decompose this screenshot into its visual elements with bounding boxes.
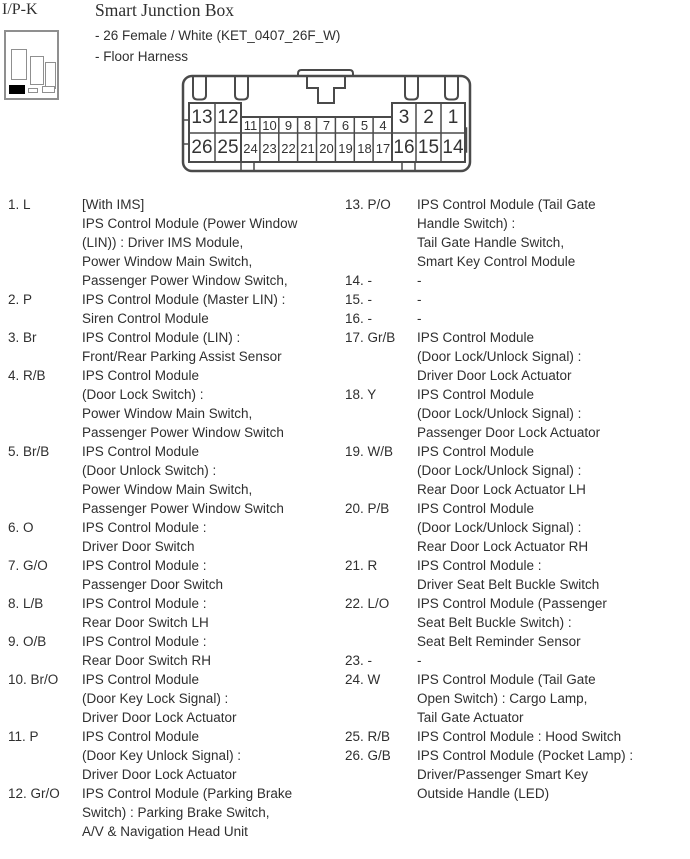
- pin-cell-9: 9: [279, 117, 298, 133]
- pin-entry-11: 11. P IPS Control Module (Door Key Unloc…: [8, 727, 342, 784]
- pin-cell-18: 18: [355, 133, 374, 162]
- pin-entry-19: 19. W/B IPS Control Module (Door Lock/Un…: [345, 442, 687, 499]
- pin-number-label: 4. R/B: [8, 366, 82, 385]
- pin-number-label: 7. G/O: [8, 556, 82, 575]
- pin-number-label: 9. O/B: [8, 632, 82, 651]
- pin-number-label: 16. -: [345, 309, 417, 328]
- pin-number-label: 13. P/O: [345, 195, 417, 214]
- pin-list-left: 1. L [With IMS] IPS Control Module (Powe…: [8, 195, 342, 841]
- pin-cell-24: 24: [241, 133, 260, 162]
- connector-location-icon: [4, 30, 59, 100]
- pin-cell-16: 16: [392, 133, 416, 162]
- pin-number-label: 24. W: [345, 670, 417, 689]
- pin-description: IPS Control Module (Tail Gate Open Switc…: [417, 670, 687, 727]
- pin-entry-25: 25. R/B IPS Control Module : Hood Switch: [345, 727, 687, 746]
- pin-cell-22: 22: [279, 133, 298, 162]
- pin-entry-7: 7. G/O IPS Control Module : Passenger Do…: [8, 556, 342, 594]
- pin-number-label: 23. -: [345, 651, 417, 670]
- pin-entry-1: 1. L [With IMS] IPS Control Module (Powe…: [8, 195, 342, 290]
- pin-entry-18: 18. Y IPS Control Module (Door Lock/Unlo…: [345, 385, 687, 442]
- pin-description: IPS Control Module (Tail Gate Handle Swi…: [417, 195, 687, 271]
- pin-cell-13: 13: [189, 103, 215, 133]
- pin-description: IPS Control Module (Door Lock/Unlock Sig…: [417, 328, 687, 385]
- pin-cell-3: 3: [392, 103, 416, 133]
- connector-id: I/P-K: [2, 1, 38, 19]
- pin-description: IPS Control Module (Door Lock Switch) : …: [82, 366, 342, 442]
- pin-number-label: 17. Gr/B: [345, 328, 417, 347]
- pin-number-label: 21. R: [345, 556, 417, 575]
- pin-cell-23: 23: [260, 133, 279, 162]
- pin-cell-5: 5: [355, 117, 374, 133]
- pin-cell-4: 4: [374, 117, 392, 133]
- pin-cell-17: 17: [374, 133, 392, 162]
- pin-cell-8: 8: [298, 117, 317, 133]
- pin-number-label: 3. Br: [8, 328, 82, 347]
- pin-entry-24: 24. W IPS Control Module (Tail Gate Open…: [345, 670, 687, 727]
- pin-number-label: 11. P: [8, 727, 82, 746]
- pin-entry-6: 6. O IPS Control Module : Driver Door Sw…: [8, 518, 342, 556]
- pin-cell-26: 26: [189, 133, 215, 162]
- pin-number-label: 2. P: [8, 290, 82, 309]
- connector-spec: - 26 Female / White (KET_0407_26F_W): [95, 28, 340, 43]
- pin-entry-14: 14. - -: [345, 271, 687, 290]
- location-highlight-block: [9, 85, 25, 94]
- bottom-tab-1: [241, 162, 254, 171]
- pin-number-label: 26. G/B: [345, 746, 417, 765]
- pin-entry-16: 16. - -: [345, 309, 687, 328]
- pin-entry-13: 13. P/O IPS Control Module (Tail Gate Ha…: [345, 195, 687, 271]
- location-block-2: [30, 56, 44, 85]
- pin-number-label: 20. P/B: [345, 499, 417, 518]
- pin-description: IPS Control Module (Master LIN) : Siren …: [82, 290, 342, 328]
- pin-description: -: [417, 290, 687, 309]
- pin-list-right: 13. P/O IPS Control Module (Tail Gate Ha…: [345, 195, 687, 803]
- pin-entry-23: 23. - -: [345, 651, 687, 670]
- pin-description: -: [417, 309, 687, 328]
- pin-description: IPS Control Module (Door Lock/Unlock Sig…: [417, 385, 687, 442]
- pin-cell-25: 25: [215, 133, 241, 162]
- pin-description: IPS Control Module : Rear Door Switch LH: [82, 594, 342, 632]
- pin-entry-12: 12. Gr/O IPS Control Module (Parking Bra…: [8, 784, 342, 841]
- pin-number-label: 18. Y: [345, 385, 417, 404]
- pin-entry-2: 2. P IPS Control Module (Master LIN) : S…: [8, 290, 342, 328]
- pin-entry-15: 15. - -: [345, 290, 687, 309]
- pin-number-label: 14. -: [345, 271, 417, 290]
- pin-cell-6: 6: [336, 117, 355, 133]
- pin-cell-2: 2: [416, 103, 441, 133]
- pin-entry-21: 21. R IPS Control Module : Driver Seat B…: [345, 556, 687, 594]
- pin-cell-7: 7: [317, 117, 336, 133]
- pin-cell-19: 19: [336, 133, 355, 162]
- pin-cell-12: 12: [215, 103, 241, 133]
- pin-entry-4: 4. R/B IPS Control Module (Door Lock Swi…: [8, 366, 342, 442]
- pin-number-label: 12. Gr/O: [8, 784, 82, 803]
- pin-description: IPS Control Module : Driver Door Switch: [82, 518, 342, 556]
- pin-cell-15: 15: [416, 133, 441, 162]
- harness-name: - Floor Harness: [95, 49, 188, 64]
- pin-description: [With IMS] IPS Control Module (Power Win…: [82, 195, 342, 290]
- pin-entry-8: 8. L/B IPS Control Module : Rear Door Sw…: [8, 594, 342, 632]
- pin-description: IPS Control Module (Door Unlock Switch) …: [82, 442, 342, 518]
- pin-description: -: [417, 651, 687, 670]
- pin-description: IPS Control Module : Rear Door Switch RH: [82, 632, 342, 670]
- bottom-tab-2: [402, 162, 415, 171]
- pin-entry-17: 17. Gr/B IPS Control Module (Door Lock/U…: [345, 328, 687, 385]
- pin-number-label: 6. O: [8, 518, 82, 537]
- pin-number-label: 19. W/B: [345, 442, 417, 461]
- pin-description: IPS Control Module (Door Lock/Unlock Sig…: [417, 442, 687, 499]
- pin-description: IPS Control Module (Door Lock/Unlock Sig…: [417, 499, 687, 556]
- pin-entry-20: 20. P/B IPS Control Module (Door Lock/Un…: [345, 499, 687, 556]
- location-block-5: [42, 86, 55, 93]
- pin-number-label: 5. Br/B: [8, 442, 82, 461]
- location-block-4: [28, 88, 38, 93]
- pin-description: IPS Control Module (Passenger Seat Belt …: [417, 594, 687, 651]
- pin-description: -: [417, 271, 687, 290]
- pin-entry-10: 10. Br/O IPS Control Module (Door Key Lo…: [8, 670, 342, 727]
- pin-cell-10: 10: [260, 117, 279, 133]
- pin-number-label: 15. -: [345, 290, 417, 309]
- page-title: Smart Junction Box: [95, 0, 234, 21]
- pin-description: IPS Control Module : Driver Seat Belt Bu…: [417, 556, 687, 594]
- pin-number-label: 25. R/B: [345, 727, 417, 746]
- pin-description: IPS Control Module (Parking Brake Switch…: [82, 784, 342, 841]
- pin-entry-26: 26. G/B IPS Control Module (Pocket Lamp)…: [345, 746, 687, 803]
- pin-description: IPS Control Module (Door Key Lock Signal…: [82, 670, 342, 727]
- pin-entry-5: 5. Br/B IPS Control Module (Door Unlock …: [8, 442, 342, 518]
- pin-cell-1: 1: [441, 103, 465, 133]
- pin-cell-20: 20: [317, 133, 336, 162]
- pin-number-label: 22. L/O: [345, 594, 417, 613]
- pin-number-label: 10. Br/O: [8, 670, 82, 689]
- pin-entry-9: 9. O/B IPS Control Module : Rear Door Sw…: [8, 632, 342, 670]
- pin-cell-21: 21: [298, 133, 317, 162]
- pin-description: IPS Control Module (LIN) : Front/Rear Pa…: [82, 328, 342, 366]
- pin-entry-22: 22. L/O IPS Control Module (Passenger Se…: [345, 594, 687, 651]
- pin-cell-11: 11: [241, 117, 260, 133]
- pin-entry-3: 3. Br IPS Control Module (LIN) : Front/R…: [8, 328, 342, 366]
- location-block-3: [45, 62, 56, 89]
- pin-description: IPS Control Module (Pocket Lamp) : Drive…: [417, 746, 687, 803]
- pin-description: IPS Control Module : Passenger Door Swit…: [82, 556, 342, 594]
- location-block-1: [11, 49, 27, 80]
- pin-description: IPS Control Module : Hood Switch: [417, 727, 687, 746]
- pin-cell-14: 14: [441, 133, 465, 162]
- pin-number-label: 1. L: [8, 195, 82, 214]
- pin-description: IPS Control Module (Door Key Unlock Sign…: [82, 727, 342, 784]
- pin-number-label: 8. L/B: [8, 594, 82, 613]
